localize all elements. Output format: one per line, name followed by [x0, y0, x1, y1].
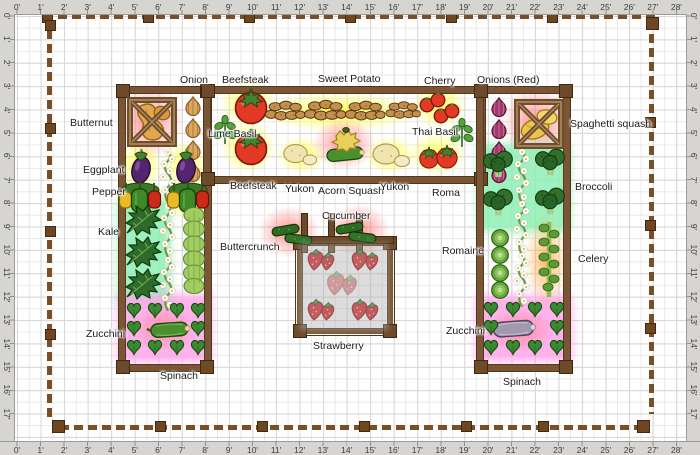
label-onions-red: Onions (Red): [477, 74, 539, 86]
ruler-label: 22': [530, 2, 541, 12]
ruler-label: 9': [2, 223, 12, 229]
ruler-label: 6': [689, 153, 699, 159]
label-spinach-left: Spinach: [160, 370, 198, 382]
label-beefsteak-bottom: Beefsteak: [230, 180, 277, 192]
ruler-label: 4': [108, 2, 114, 12]
fence-post[interactable]: [45, 226, 56, 237]
ruler-label: 0': [689, 13, 699, 19]
ruler-label: 3': [84, 445, 90, 455]
plant-spinach-icon[interactable]: [124, 300, 208, 320]
ruler-label: 14': [689, 338, 699, 349]
ruler-label: 17': [412, 2, 423, 12]
ruler-label: 12': [2, 291, 12, 302]
ruler-label: 14': [2, 338, 12, 349]
label-celery: Celery: [578, 253, 608, 265]
plant-spinach-icon[interactable]: [481, 337, 567, 357]
ruler-label: 18': [435, 2, 446, 12]
plant-buttercrunch-lettuce-icon[interactable]: [182, 207, 206, 295]
plant-roma-tomato-icon[interactable]: [417, 139, 459, 171]
plant-broccoli-icon[interactable]: [481, 149, 515, 223]
fence-post-corner[interactable]: [52, 420, 65, 433]
ruler-label: 24': [577, 2, 588, 12]
ruler-label: 10': [689, 244, 699, 255]
ruler-label: 26': [624, 445, 635, 455]
ruler-label: 5': [689, 130, 699, 136]
ruler-label: 5': [132, 445, 138, 455]
ruler-label: 6': [155, 2, 161, 12]
ruler-right: 0'1'2'3'4'5'6'7'8'9'10'11'12'13'14'15'16…: [686, 14, 700, 441]
ruler-label: 19': [459, 2, 470, 12]
ruler-label: 9': [689, 223, 699, 229]
ruler-label: 4': [108, 445, 114, 455]
ruler-label: 18': [435, 445, 446, 455]
label-zucchini-left: Zucchini: [86, 328, 125, 340]
ruler-label: 25': [600, 445, 611, 455]
ruler-label: 24': [577, 445, 588, 455]
ruler-label: 23': [553, 445, 564, 455]
fence-post[interactable]: [45, 123, 56, 134]
label-cucumber: Cucumber: [322, 210, 370, 222]
plant-spinach-icon[interactable]: [124, 318, 144, 338]
label-pepper: Pepper: [92, 186, 126, 198]
ruler-label: 1': [37, 445, 43, 455]
ruler-label: 20': [482, 2, 493, 12]
ruler-label: 16': [388, 445, 399, 455]
fence-post[interactable]: [461, 421, 472, 432]
ruler-label: 3': [2, 83, 12, 89]
ruler-label: 15': [689, 361, 699, 372]
plant-acorn-squash-icon[interactable]: [321, 124, 369, 164]
fence-post[interactable]: [538, 421, 549, 432]
ruler-label: 2': [61, 2, 67, 12]
ruler-label: 11': [271, 2, 281, 12]
ruler-left: 0'1'2'3'4'5'6'7'8'9'10'11'12'13'14'15'16…: [0, 14, 15, 441]
ruler-label: 3': [84, 2, 90, 12]
ruler-label: 14': [341, 2, 352, 12]
plant-yukon-potato-icon[interactable]: [371, 141, 411, 169]
fence-post[interactable]: [45, 20, 56, 31]
ruler-label: 4': [689, 106, 699, 112]
plant-spinach-icon[interactable]: [481, 299, 567, 319]
ruler-label: 27': [647, 2, 658, 12]
ruler-label: 14': [341, 445, 352, 455]
fence-post[interactable]: [45, 329, 56, 340]
plant-cucumber-icon[interactable]: [335, 221, 377, 245]
ruler-label: 13': [2, 315, 12, 326]
ruler-label: 6': [155, 445, 161, 455]
label-yukon-right: Yukon: [380, 181, 409, 193]
plant-sweet-potato-icon[interactable]: [344, 98, 386, 122]
ruler-top: 0'1'2'3'4'5'6'7'8'9'10'11'12'13'14'15'16…: [0, 0, 700, 15]
label-spinach-right: Spinach: [503, 376, 541, 388]
fence-post[interactable]: [155, 421, 166, 432]
label-thai-basil: Thai Basil: [412, 126, 458, 138]
row-cover[interactable]: [302, 246, 386, 328]
ruler-label: 19': [459, 445, 470, 455]
label-onion: Onion: [180, 74, 208, 86]
ruler-label: 7': [689, 177, 699, 183]
plant-broccoli-icon[interactable]: [533, 147, 567, 223]
ruler-label: 4': [2, 106, 12, 112]
ruler-label: 3': [689, 83, 699, 89]
butternut-trellis-icon[interactable]: [126, 96, 178, 148]
ruler-label: 2': [689, 60, 699, 66]
ruler-label: 17': [412, 445, 423, 455]
ruler-label: 13': [318, 2, 329, 12]
label-sweet-potato: Sweet Potato: [318, 73, 380, 85]
ruler-label: 0': [14, 2, 20, 12]
label-acorn-squash: Acorn Squash: [318, 185, 384, 197]
label-yukon-left: Yukon: [285, 183, 314, 195]
ruler-label: 12': [294, 2, 305, 12]
label-broccoli: Broccoli: [575, 181, 612, 193]
label-kale: Kale: [98, 226, 119, 238]
plant-yukon-potato-icon[interactable]: [282, 141, 318, 168]
plant-sweet-potato-icon[interactable]: [304, 97, 346, 122]
ruler-label: 28': [671, 2, 682, 12]
ruler-label: 6': [2, 153, 12, 159]
ruler-label: 8': [2, 200, 12, 206]
flower-strip-icon[interactable]: [512, 149, 532, 307]
label-romaine: Romaine: [442, 245, 484, 257]
ruler-label: 17': [2, 408, 12, 419]
label-cherry: Cherry: [424, 75, 456, 87]
plant-sweet-potato-icon[interactable]: [264, 98, 306, 122]
fence-post[interactable]: [645, 220, 656, 231]
fence-right[interactable]: [649, 20, 654, 414]
ruler-label: 21': [506, 445, 517, 455]
label-beefsteak-top: Beefsteak: [222, 74, 269, 86]
ruler-label: 15': [365, 445, 376, 455]
ruler-bottom: 0'1'2'3'4'5'6'7'8'9'10'11'12'13'14'15'16…: [0, 441, 700, 455]
label-zucchini-right: Zucchini: [446, 325, 485, 337]
ruler-label: 16': [388, 2, 399, 12]
label-eggplant: Eggplant: [83, 164, 124, 176]
label-butternut: Butternut: [70, 117, 113, 129]
garden-planner-canvas: 0'1'2'3'4'5'6'7'8'9'10'11'12'13'14'15'16…: [0, 0, 700, 455]
plant-kale-icon[interactable]: [122, 204, 162, 300]
ruler-label: 12': [689, 291, 699, 302]
ruler-label: 26': [624, 2, 635, 12]
label-strawberry: Strawberry: [313, 340, 364, 352]
ruler-label: 7': [2, 177, 12, 183]
fence-post[interactable]: [257, 421, 268, 432]
ruler-label: 7': [179, 2, 185, 12]
plant-spinach-icon[interactable]: [188, 318, 208, 338]
label-spaghetti-squash: Spaghetti squash: [570, 118, 651, 130]
ruler-label: 22': [530, 445, 541, 455]
plant-celery-icon[interactable]: [536, 218, 562, 300]
ruler-label: 15': [2, 361, 12, 372]
fence-bottom[interactable]: [60, 425, 646, 430]
ruler-label: 10': [247, 445, 258, 455]
label-buttercrunch: Buttercrunch: [220, 241, 280, 253]
fence-post-corner[interactable]: [637, 420, 650, 433]
plant-spinach-icon[interactable]: [124, 337, 208, 357]
ruler-label: 8': [202, 445, 208, 455]
fence-left[interactable]: [47, 16, 52, 421]
label-roma: Roma: [432, 187, 460, 199]
ruler-label: 16': [2, 385, 12, 396]
ruler-label: 9': [226, 2, 232, 12]
ruler-label: 25': [600, 2, 611, 12]
ruler-label: 10': [247, 2, 258, 12]
plant-sweet-potato-icon[interactable]: [385, 99, 421, 120]
ruler-label: 11': [689, 268, 699, 278]
ruler-label: 13': [318, 445, 329, 455]
ruler-label: 16': [689, 385, 699, 396]
ruler-label: 27': [647, 445, 658, 455]
ruler-label: 9': [226, 445, 232, 455]
ruler-label: 10': [2, 244, 12, 255]
ruler-label: 0': [14, 445, 20, 455]
label-lime-basil: Lime Basil: [208, 128, 256, 140]
ruler-label: 1': [2, 36, 12, 42]
fence-post[interactable]: [645, 323, 656, 334]
ruler-label: 28': [671, 445, 682, 455]
fence-post-corner[interactable]: [646, 17, 659, 30]
ruler-label: 15': [365, 2, 376, 12]
ruler-label: 17': [689, 408, 699, 419]
ruler-label: 1': [37, 2, 43, 12]
ruler-label: 5': [132, 2, 138, 12]
spaghetti-squash-trellis-icon[interactable]: [513, 98, 565, 150]
ruler-label: 5': [2, 130, 12, 136]
ruler-label: 1': [689, 36, 699, 42]
plant-romaine-lettuce-icon[interactable]: [486, 229, 514, 299]
plant-spinach-icon[interactable]: [547, 317, 567, 337]
fence-post[interactable]: [359, 421, 370, 432]
ruler-label: 13': [689, 315, 699, 326]
ruler-label: 2': [2, 60, 12, 66]
ruler-label: 23': [553, 2, 564, 12]
ruler-label: 21': [506, 2, 517, 12]
ruler-label: 11': [2, 268, 12, 278]
plant-eggplant-icon[interactable]: [126, 147, 156, 185]
ruler-label: 0': [2, 13, 12, 19]
ruler-label: 7': [179, 445, 185, 455]
ruler-label: 12': [294, 445, 305, 455]
ruler-label: 2': [61, 445, 67, 455]
ruler-label: 8': [689, 200, 699, 206]
ruler-label: 11': [271, 445, 281, 455]
ruler-label: 20': [482, 445, 493, 455]
ruler-label: 8': [202, 2, 208, 12]
